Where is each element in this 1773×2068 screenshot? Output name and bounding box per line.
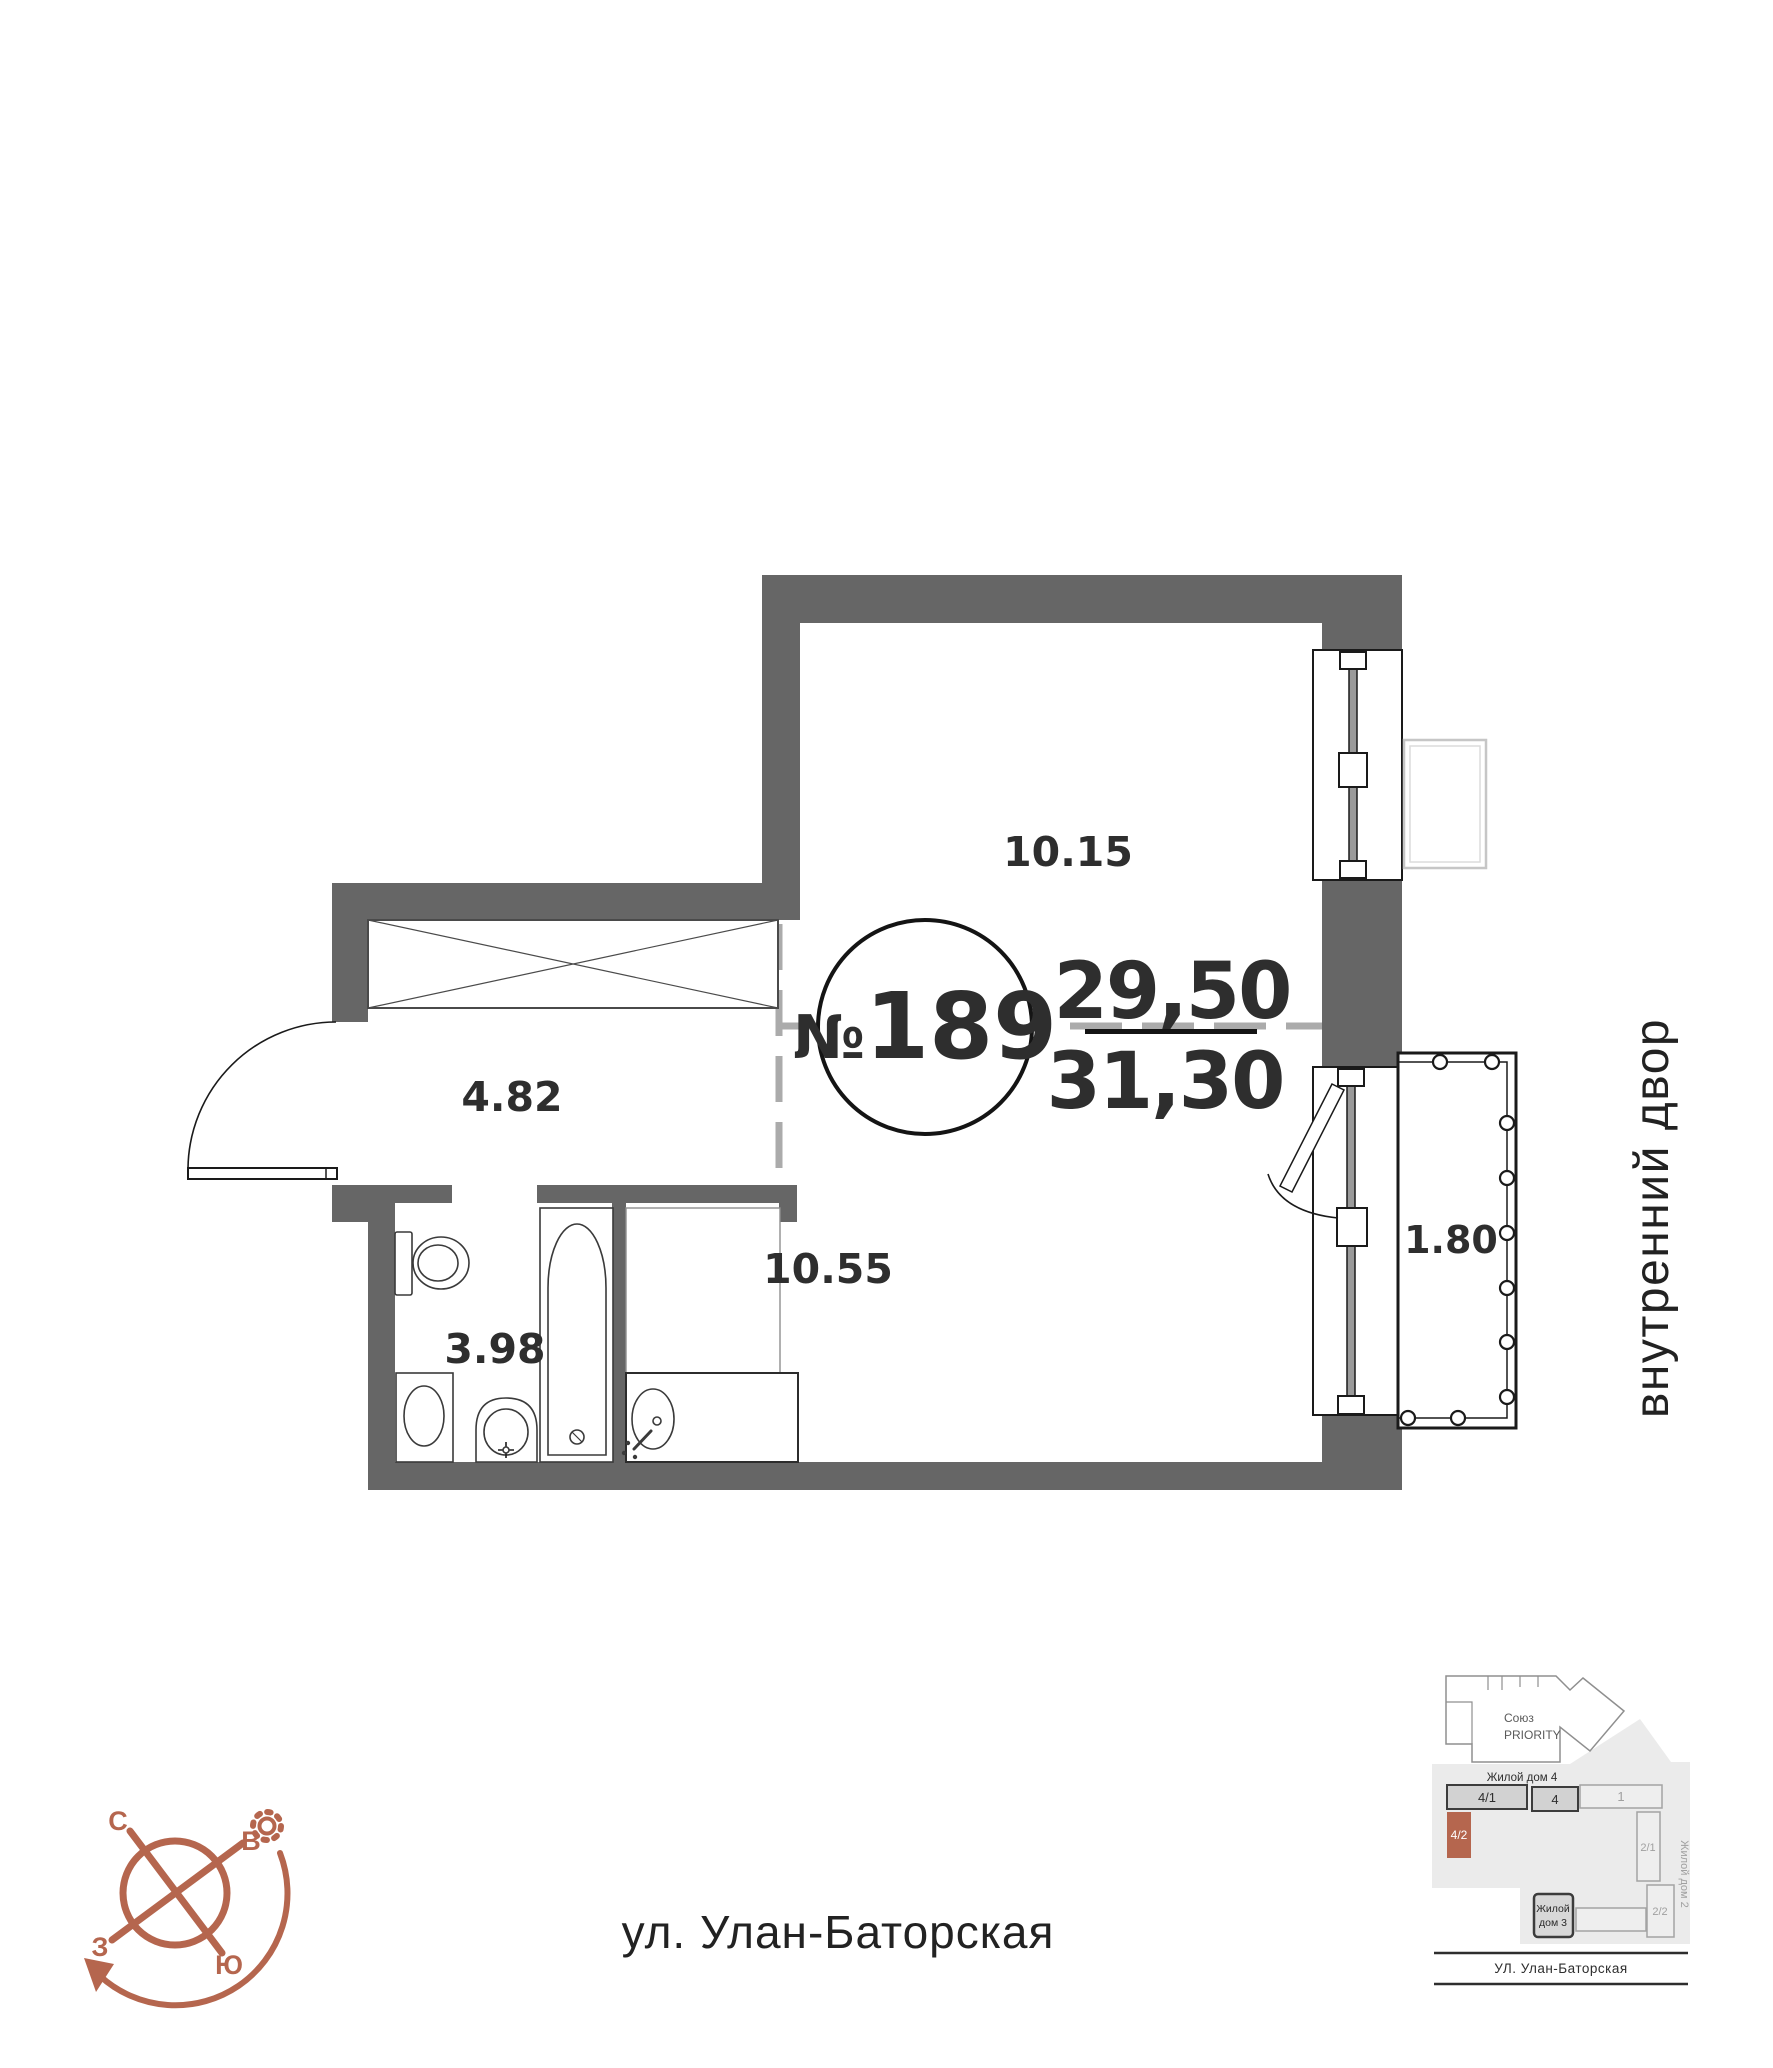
entry-door	[188, 1022, 337, 1179]
balcony-door	[1268, 1067, 1402, 1415]
compass-north: С	[108, 1806, 128, 1836]
compass-west: З	[92, 1932, 109, 1962]
window-sill-box	[1404, 740, 1486, 868]
minimap-complex-name-2: PRIORITY	[1504, 1728, 1561, 1742]
minimap-building-2-2-label: 2/2	[1652, 1906, 1667, 1918]
minimap-street-label: УЛ. Улан-Баторская	[1494, 1961, 1627, 1976]
toilet	[395, 1232, 469, 1295]
minimap-building-2-1-label: 2/1	[1640, 1842, 1655, 1854]
minimap-building-house3	[1534, 1894, 1573, 1937]
minimap-building-house3-annex	[1576, 1908, 1646, 1931]
room-label-hallway: 4.82	[461, 1073, 562, 1121]
washing-machine	[396, 1373, 453, 1462]
minimap-house3-label-2: дом 3	[1539, 1917, 1567, 1929]
minimap-building-1-label: 1	[1617, 1789, 1624, 1804]
minimap-house4-label: Жилой дом 4	[1487, 1772, 1558, 1784]
minimap-building-4-label: 4	[1551, 1792, 1558, 1807]
room-label-living: 10.15	[1003, 828, 1133, 876]
living-area-value: 29,50	[1054, 947, 1291, 1037]
site-minimap: Союз PRIORITY Жилой дом 4 4/1 4 1 4/2 2/…	[1432, 1676, 1690, 1984]
window-top	[1313, 650, 1402, 880]
compass-rose: С В З Ю	[84, 1806, 287, 2005]
minimap-street: УЛ. Улан-Баторская	[1434, 1953, 1688, 1984]
room-label-kitchen: 10.55	[763, 1245, 893, 1293]
compass-east: В	[241, 1826, 261, 1856]
unit-number-badge: №189	[793, 920, 1057, 1134]
courtyard-label: внутренний двор	[1626, 1018, 1679, 1418]
compass-south: Ю	[215, 1950, 243, 1980]
floorplan-page: №189 29,50 31,30 10.15 4.82 3.98 10.55 1…	[0, 0, 1773, 2068]
fraction-bar	[1085, 1029, 1257, 1034]
area-fraction: 29,50 31,30	[1047, 947, 1291, 1127]
minimap-complex-name-1: Союз	[1504, 1711, 1534, 1725]
pedestal-sink	[476, 1398, 537, 1462]
minimap-house3-label-1: Жилой	[1536, 1903, 1570, 1915]
room-label-bathroom: 3.98	[444, 1325, 545, 1373]
floorplan-drawing: №189 29,50 31,30 10.15 4.82 3.98 10.55 1…	[0, 0, 1773, 2068]
room-label-balcony: 1.80	[1404, 1218, 1498, 1262]
minimap-building-4-1-label: 4/1	[1478, 1790, 1496, 1805]
street-label: ул. Улан-Баторская	[622, 1906, 1055, 1958]
bathtub	[540, 1208, 613, 1462]
minimap-building-4-2-label: 4/2	[1451, 1828, 1468, 1842]
total-area-value: 31,30	[1047, 1037, 1284, 1127]
minimap-house2-label: Жилой дом 2	[1678, 1840, 1690, 1907]
wardrobe	[368, 920, 778, 1008]
